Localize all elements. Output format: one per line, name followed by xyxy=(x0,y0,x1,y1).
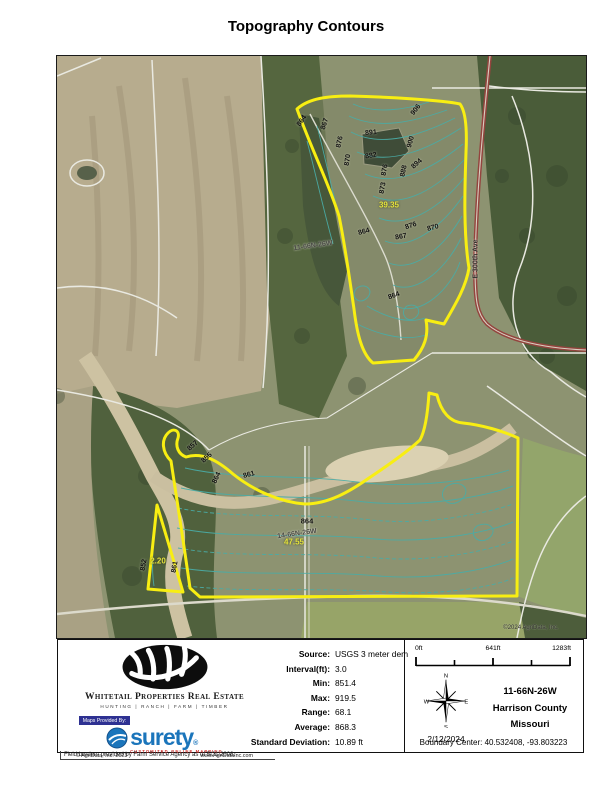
info-panel: Whitetail Properties Real Estate HUNTING… xyxy=(57,639,584,753)
surety-globe-icon xyxy=(106,727,128,749)
stat-value: 10.89 ft xyxy=(335,735,363,750)
map-legend-section: 0ft 641ft 1283ft xyxy=(404,640,582,752)
stat-label: Range: xyxy=(208,705,330,720)
page-title: Topography Contours xyxy=(0,18,612,35)
scale-tick-label: 0ft xyxy=(415,645,423,652)
compass-e: E xyxy=(464,699,468,705)
aerial-map: 864 867 876 870 891 882 876 873 906 900 … xyxy=(56,55,587,639)
stat-value: 919.5 xyxy=(335,691,356,706)
compass-block: N S E W 2/12/2024 xyxy=(413,672,479,744)
stat-label: Average: xyxy=(208,720,330,735)
footer-note: Field borders provided by Farm Service A… xyxy=(60,751,275,760)
registered-mark: ® xyxy=(193,740,198,747)
stat-label: Source: xyxy=(208,647,330,662)
scale-bar-icon xyxy=(415,656,571,667)
stat-value: 851.4 xyxy=(335,676,356,691)
field-south xyxy=(301,602,527,638)
boundary-center: Boundary Center: 40.532408, -93.803223 xyxy=(405,738,582,747)
stat-value: USGS 3 meter dem xyxy=(335,647,408,662)
compass-n: N xyxy=(444,673,448,679)
scale-bar: 0ft 641ft 1283ft xyxy=(415,645,571,672)
scale-tick-label: 1283ft xyxy=(552,645,571,652)
aerial-map-svg xyxy=(57,56,586,638)
location-block: 11-66N-26W Harrison County Missouri xyxy=(481,684,579,734)
compass-rose-icon: N S E W xyxy=(421,672,471,728)
stat-value: 3.0 xyxy=(335,662,347,677)
pond-west xyxy=(77,166,97,180)
surety-wordmark: surety xyxy=(130,724,193,750)
stat-label: Interval(ft): xyxy=(208,662,330,677)
stat-label: Max: xyxy=(208,691,330,706)
report-page: Topography Contours xyxy=(0,0,612,792)
field-east xyxy=(517,438,586,616)
stat-value: 868.3 xyxy=(335,720,356,735)
stat-label: Standard Deviation: xyxy=(208,735,330,750)
scale-tick-label: 641ft xyxy=(485,645,500,652)
state-name: Missouri xyxy=(481,717,579,734)
stat-label: Min: xyxy=(208,676,330,691)
compass-s: S xyxy=(444,725,448,728)
stat-value: 68.1 xyxy=(335,705,351,720)
compass-w: W xyxy=(424,699,430,705)
county-name: Harrison County xyxy=(481,701,579,718)
maps-provided-by-label: Maps Provided By: xyxy=(79,716,131,725)
township-range: 11-66N-26W xyxy=(481,684,579,701)
